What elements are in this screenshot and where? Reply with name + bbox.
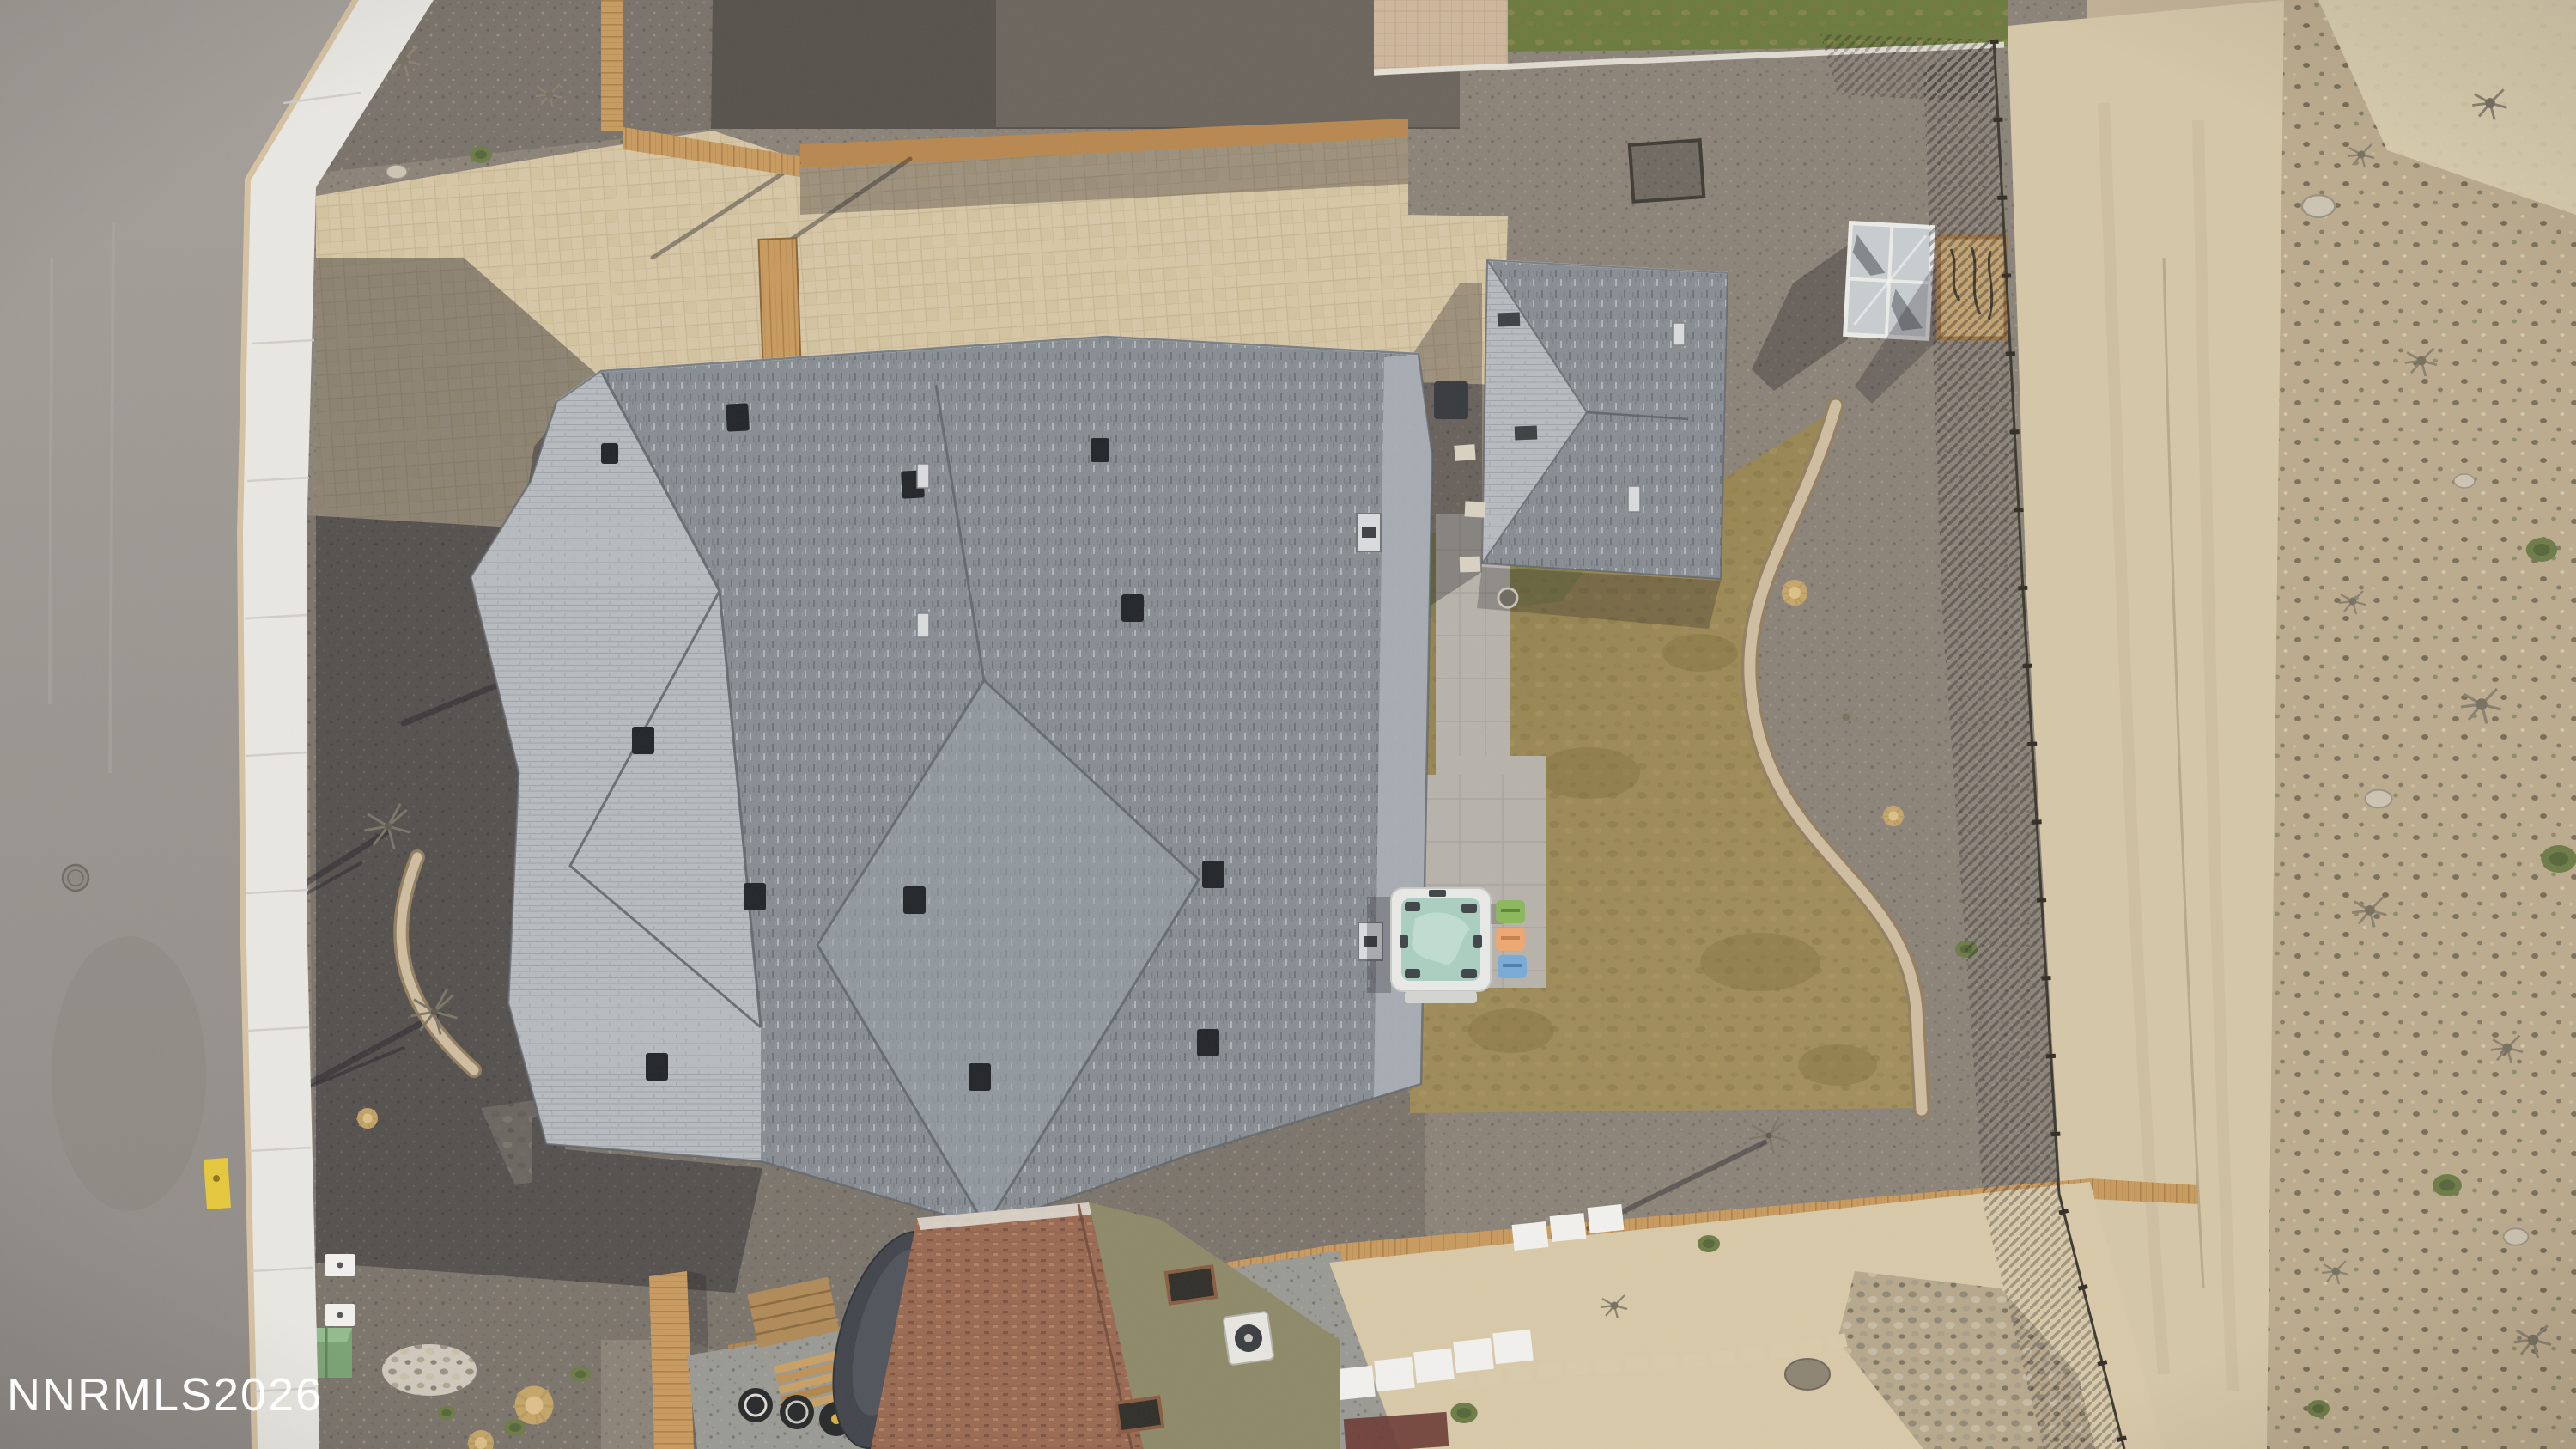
watermark: NNRMLS2026 xyxy=(7,1369,323,1421)
aerial-photo: NNRMLS2026 xyxy=(0,0,2576,1449)
photo-vignette xyxy=(0,0,2576,1449)
aerial-photo-canvas: NNRMLS2026 xyxy=(0,0,2576,1449)
